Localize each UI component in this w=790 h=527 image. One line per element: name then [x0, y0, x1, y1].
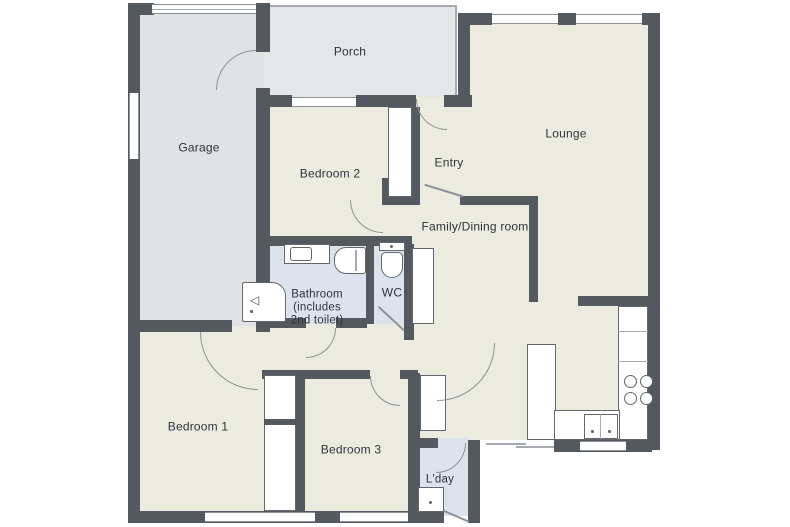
washing-machine [418, 487, 444, 512]
closet [264, 375, 296, 511]
room-label-laundry: L'day [426, 474, 454, 487]
kitchen-peninsula [527, 344, 556, 440]
porch-edge-right [455, 5, 457, 97]
wall [412, 107, 420, 199]
window [205, 512, 315, 522]
garage-door-line [152, 9, 256, 10]
window [129, 93, 139, 159]
counter-divider [618, 331, 648, 332]
wall [366, 240, 374, 324]
cooktop-burner [624, 392, 637, 405]
sink-drain [608, 430, 611, 433]
shower-head-icon: ◁ [250, 293, 259, 307]
wall [256, 3, 270, 52]
closet-divider [264, 419, 296, 425]
window [580, 441, 626, 451]
wall [578, 296, 650, 306]
window [340, 512, 408, 522]
shower-drain [250, 310, 253, 313]
wall [420, 511, 444, 523]
washing-machine-knob [429, 501, 432, 504]
room-label-bathroom: Bathroom (includes 2nd toilet) [291, 289, 344, 328]
shower [242, 282, 286, 322]
room-label-porch: Porch [334, 46, 366, 59]
room-label-garage: Garage [178, 142, 219, 155]
wall [256, 95, 292, 107]
kitchen-counter-right [618, 306, 648, 440]
wall [128, 3, 140, 523]
bathtub [334, 247, 366, 274]
wall [468, 440, 480, 523]
room-label-bedroom3: Bedroom 3 [321, 444, 382, 457]
sliding-door [516, 446, 554, 448]
room-label-bedroom1: Bedroom 1 [168, 421, 229, 434]
room-label-entry: Entry [434, 157, 463, 170]
wall [529, 196, 538, 302]
sliding-door [486, 443, 526, 445]
sink-divider [600, 414, 601, 439]
cooktop-burner [640, 375, 653, 388]
porch-edge-top [264, 5, 456, 7]
window [492, 14, 558, 24]
counter-divider [618, 361, 648, 362]
wall [460, 196, 538, 205]
pantry-closet [412, 248, 434, 324]
window [576, 14, 642, 24]
wall [458, 25, 470, 97]
cooktop-burner [640, 392, 653, 405]
room-label-lounge: Lounge [545, 128, 586, 141]
window [292, 97, 356, 107]
wall [558, 13, 576, 25]
vanity-basin [290, 247, 312, 261]
closet [388, 107, 412, 197]
toilet-bowl [381, 252, 403, 278]
room-label-bedroom2: Bedroom 2 [300, 168, 361, 181]
floor-plan: ◁ Porch Garage Bedroom 2 Entry Lounge Fa… [0, 0, 790, 527]
toilet-button [390, 245, 393, 248]
wall [128, 320, 232, 332]
wall [356, 95, 416, 107]
bathtub-line [355, 250, 357, 271]
wall [295, 373, 305, 513]
room-label-wc: WC [382, 287, 402, 300]
wall [458, 13, 492, 25]
room-label-family-dining: Family/Dining room [422, 221, 529, 234]
wall [128, 3, 154, 15]
cooktop-burner [624, 375, 637, 388]
sink-drain [591, 430, 594, 433]
